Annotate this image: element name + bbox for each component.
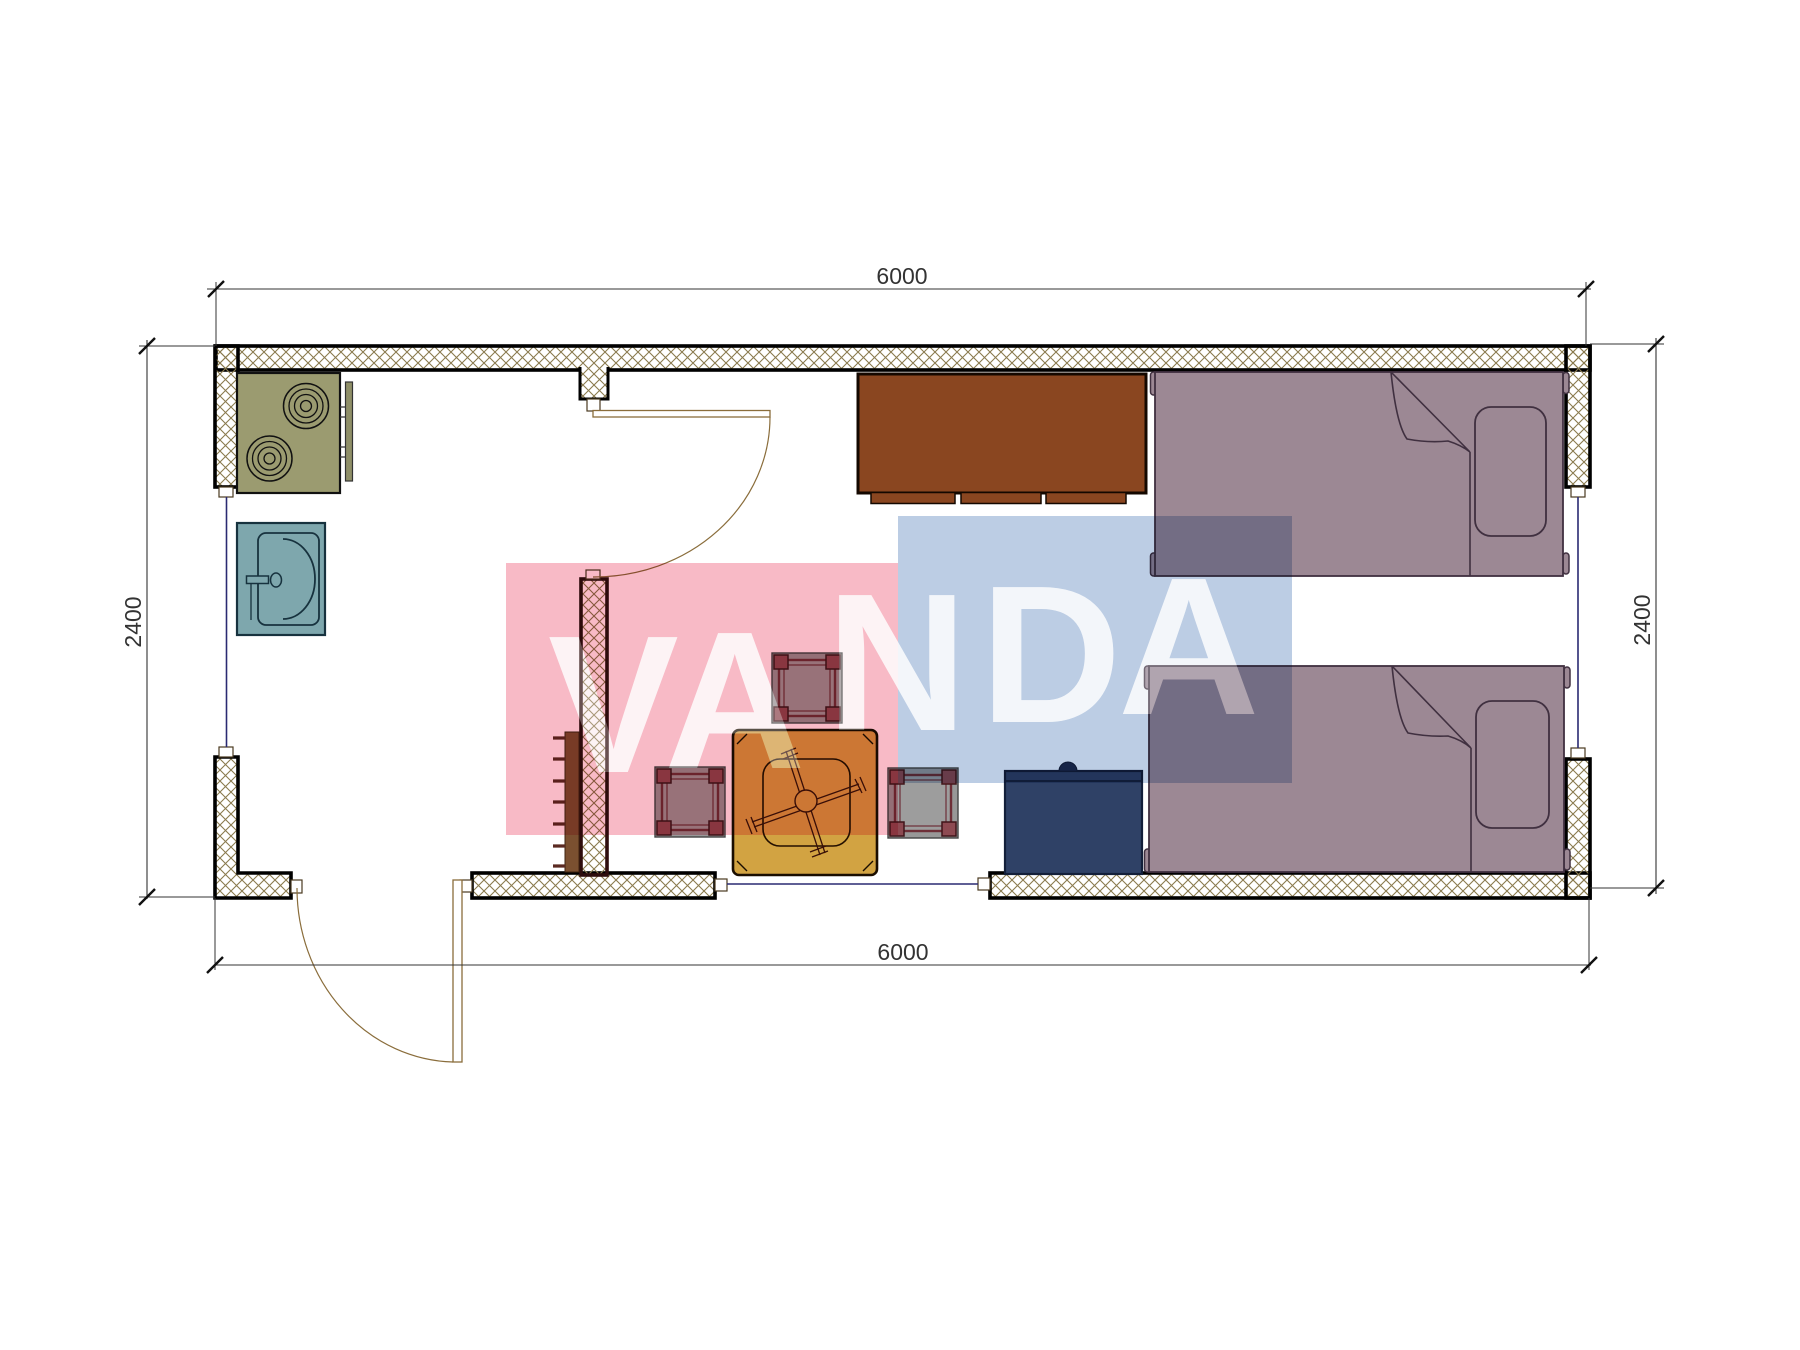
svg-text:A: A	[664, 591, 806, 810]
svg-text:2400: 2400	[1629, 594, 1655, 645]
svg-text:A: A	[1118, 537, 1260, 756]
svg-text:D: D	[980, 545, 1122, 764]
svg-text:6000: 6000	[876, 263, 927, 289]
svg-text:6000: 6000	[877, 939, 928, 965]
svg-text:V: V	[548, 595, 679, 814]
svg-text:N: N	[826, 553, 968, 772]
svg-text:2400: 2400	[120, 596, 146, 647]
